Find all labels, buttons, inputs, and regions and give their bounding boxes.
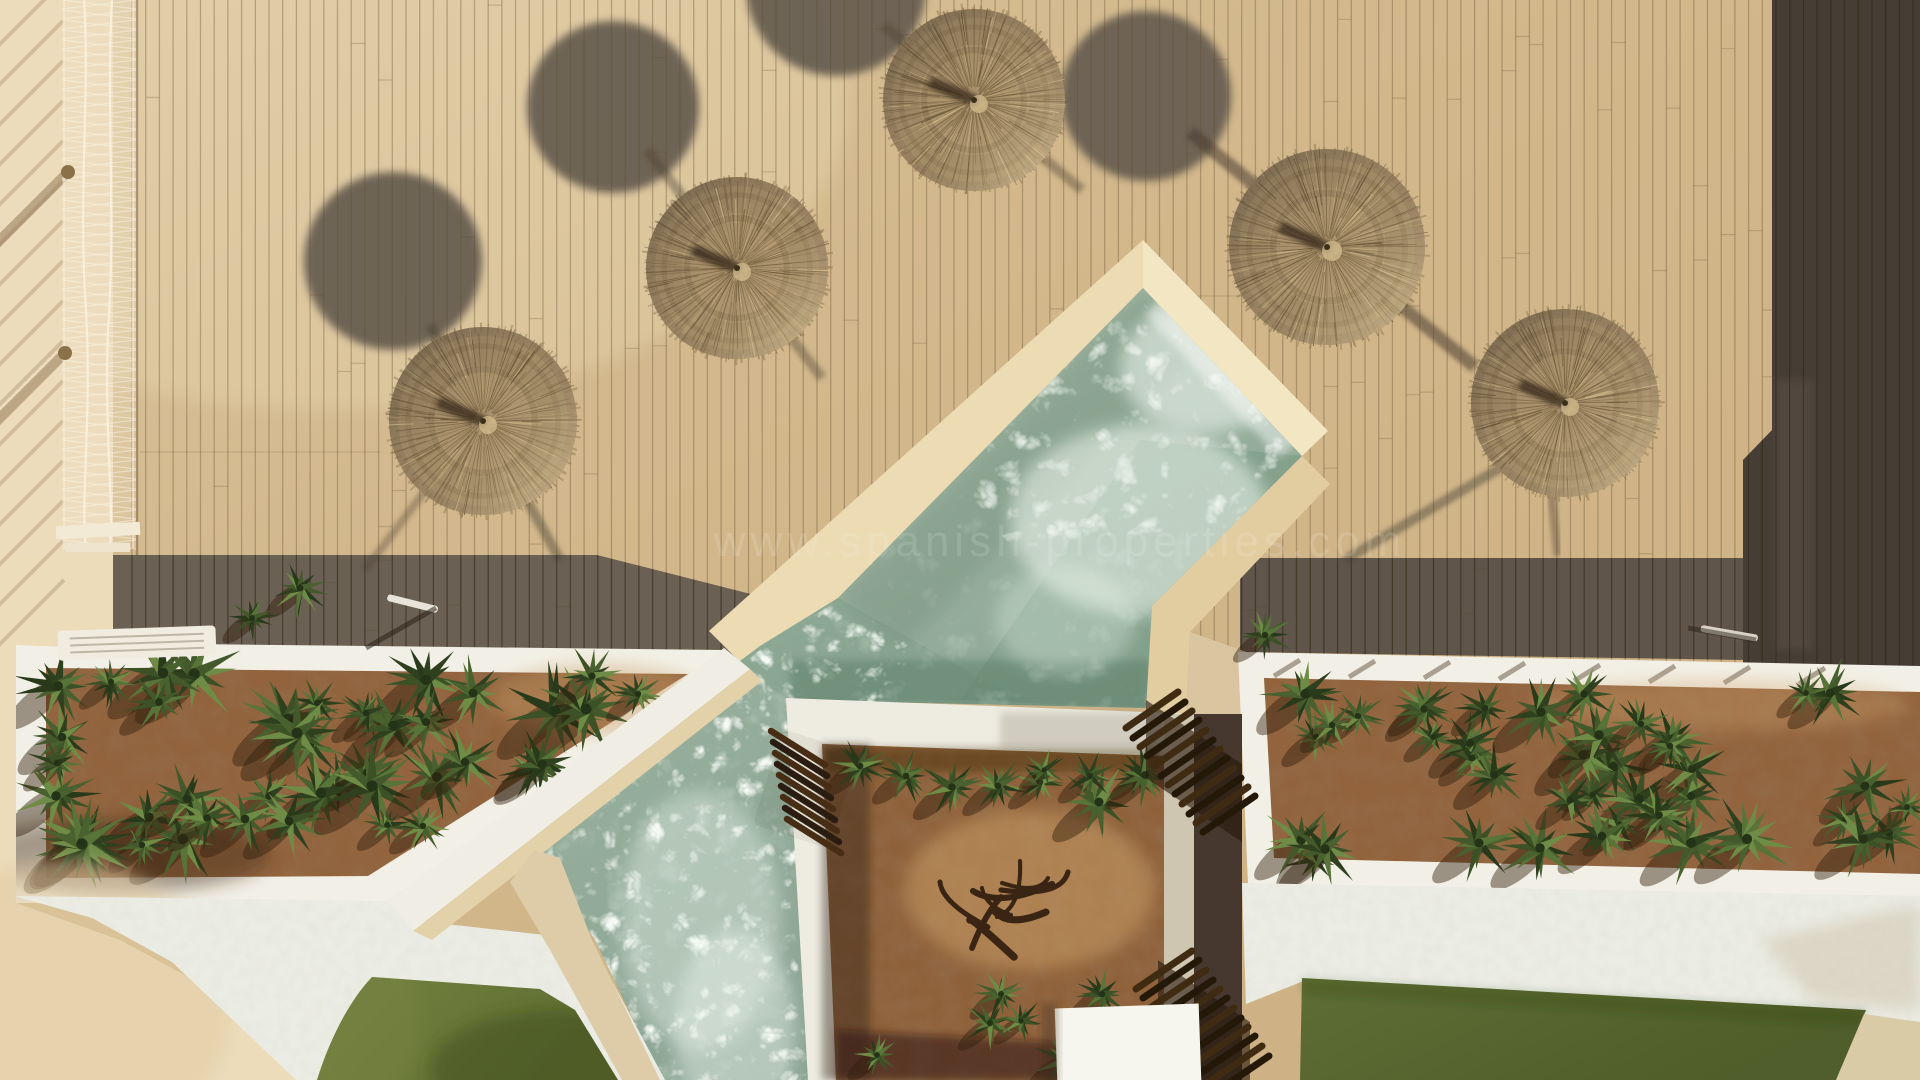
svg-text:www.spanish-properties.com: www.spanish-properties.com [713, 517, 1406, 566]
